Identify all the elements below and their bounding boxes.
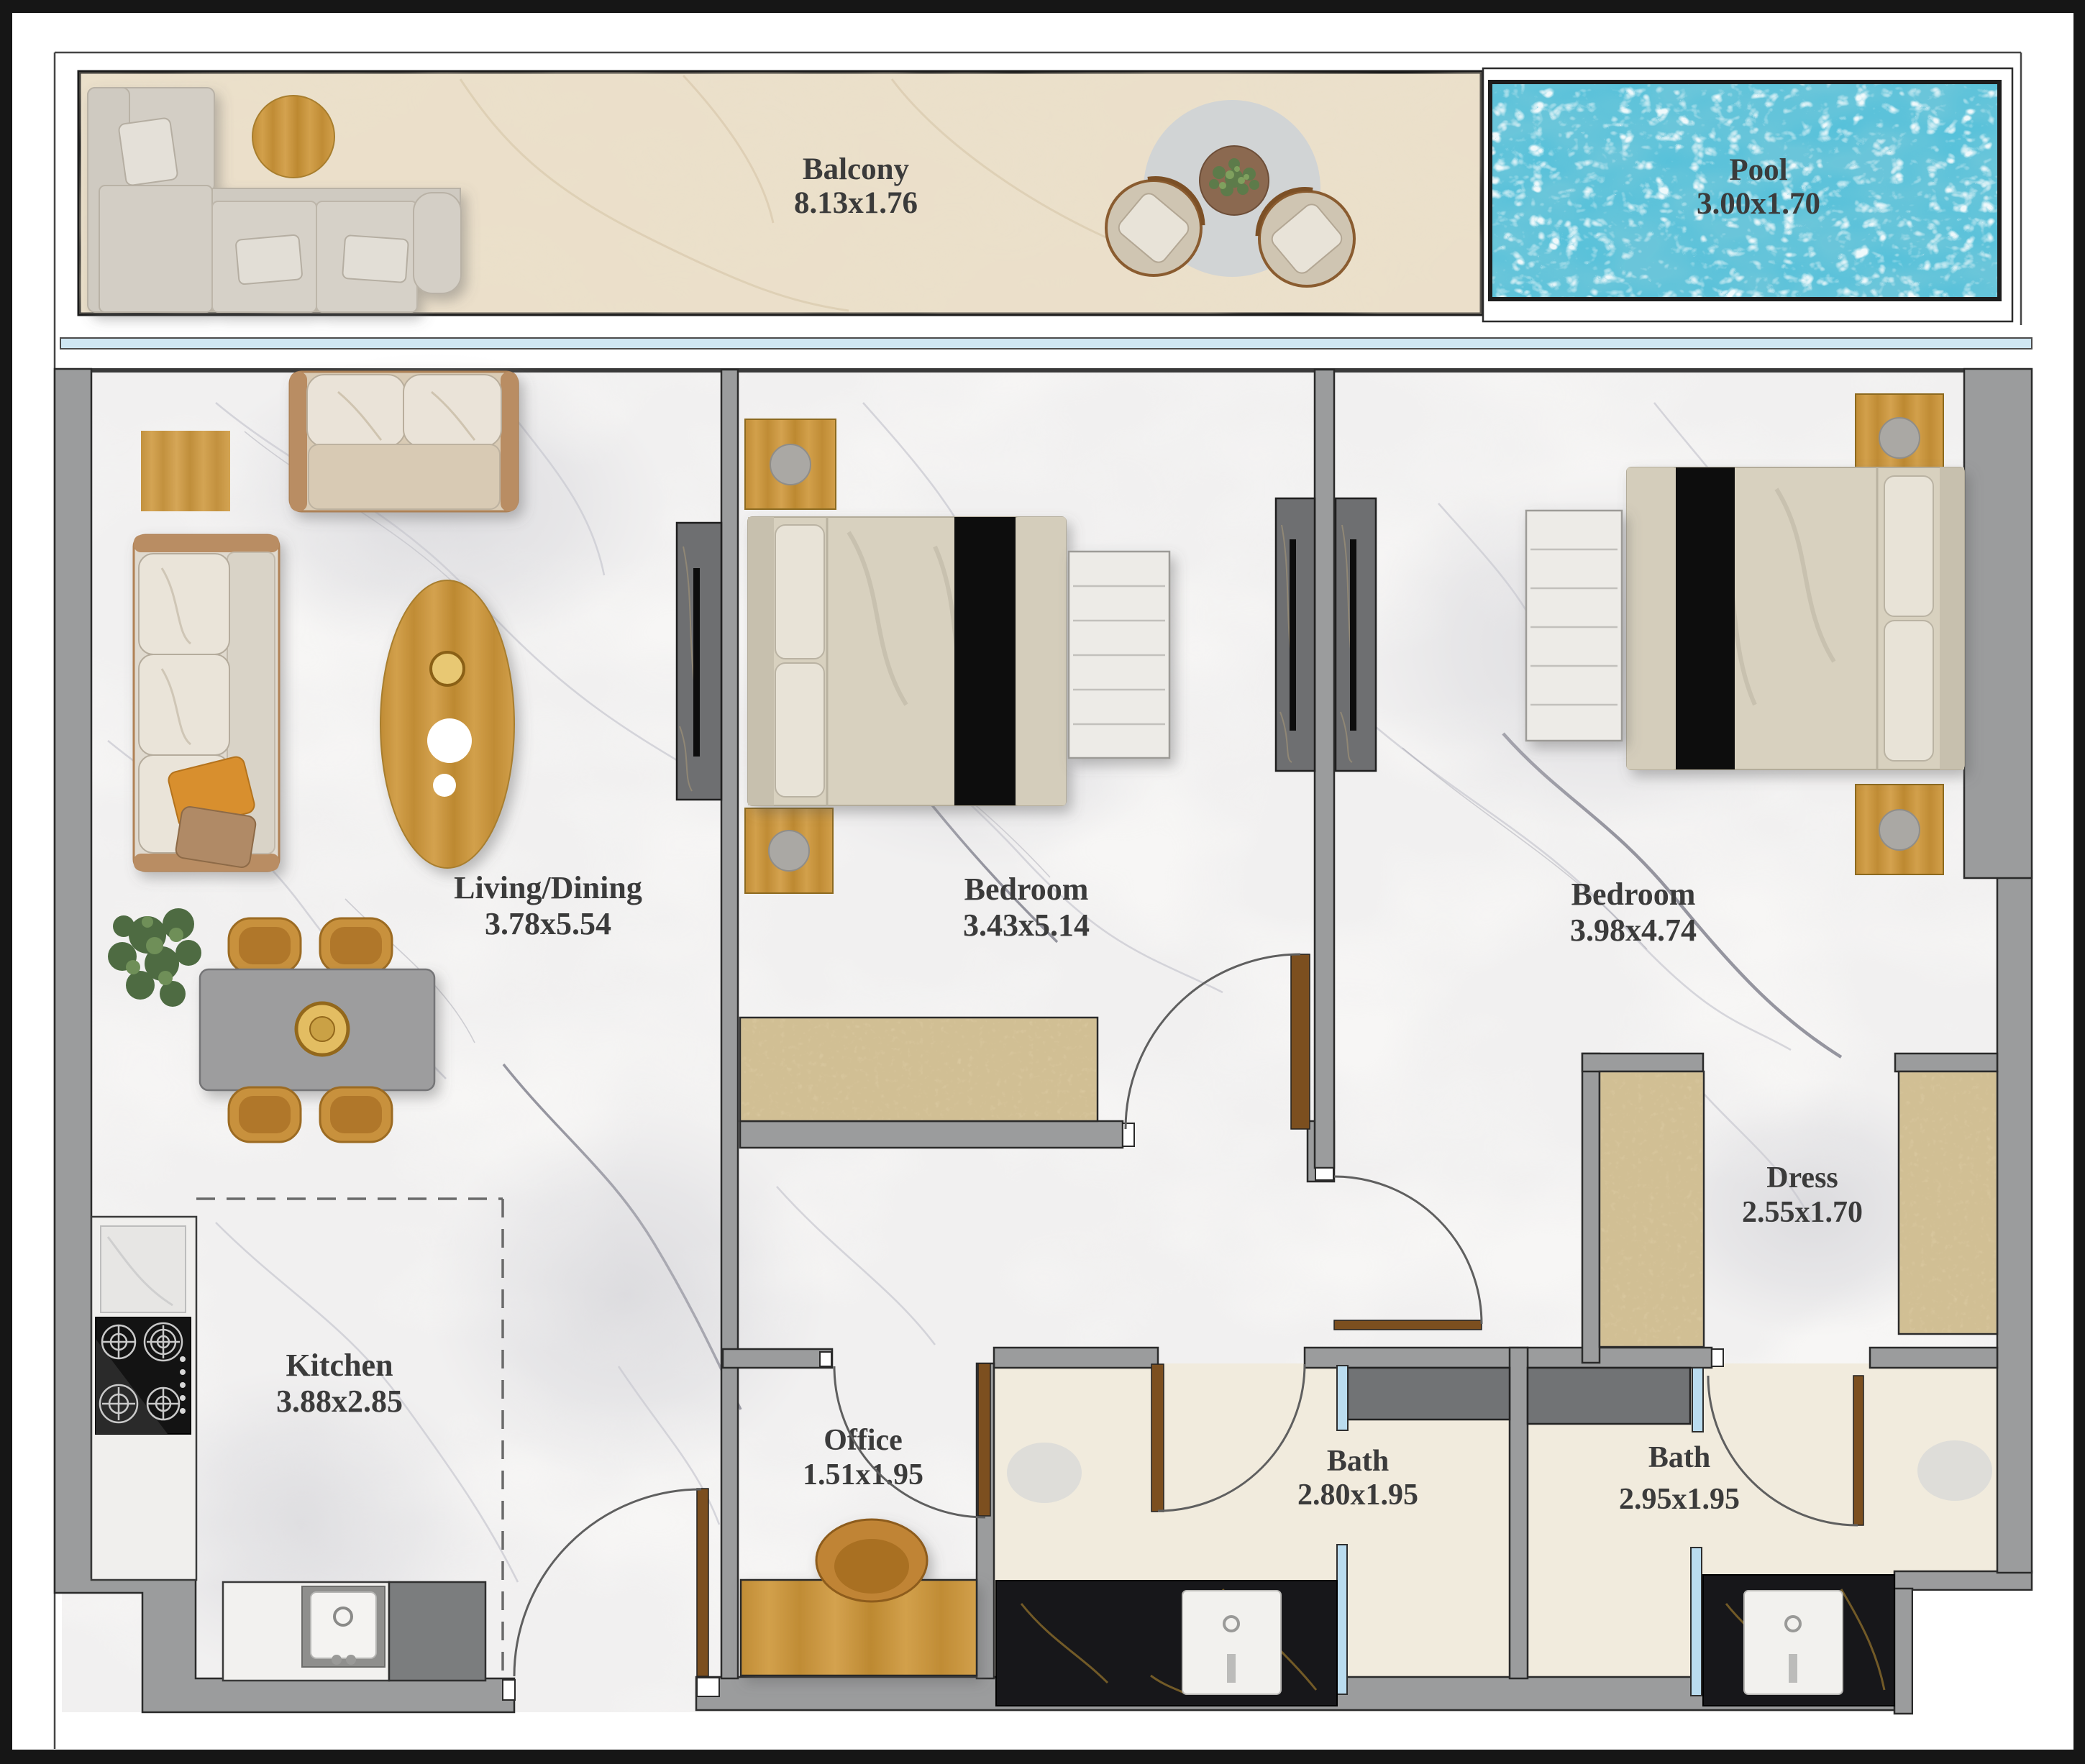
svg-text:3.00x1.70: 3.00x1.70	[1697, 187, 1820, 221]
svg-text:Kitchen: Kitchen	[286, 1348, 393, 1383]
svg-text:2.80x1.95: 2.80x1.95	[1297, 1479, 1418, 1512]
svg-text:Bath: Bath	[1327, 1445, 1389, 1478]
svg-text:2.95x1.95: 2.95x1.95	[1619, 1483, 1740, 1516]
svg-text:3.88x2.85: 3.88x2.85	[276, 1384, 403, 1419]
svg-text:Bath: Bath	[1648, 1441, 1710, 1474]
svg-text:2.55x1.70: 2.55x1.70	[1742, 1196, 1863, 1229]
svg-text:Bedroom: Bedroom	[964, 872, 1089, 907]
svg-text:Pool: Pool	[1729, 153, 1787, 187]
svg-text:Dress: Dress	[1766, 1161, 1838, 1194]
svg-text:Office: Office	[823, 1424, 903, 1457]
svg-text:8.13x1.76: 8.13x1.76	[794, 186, 918, 220]
svg-text:Living/Dining: Living/Dining	[454, 870, 642, 905]
svg-text:3.98x4.74: 3.98x4.74	[1570, 913, 1697, 948]
svg-text:Bedroom: Bedroom	[1571, 877, 1696, 912]
svg-text:3.43x5.14: 3.43x5.14	[963, 908, 1090, 943]
svg-text:3.78x5.54: 3.78x5.54	[485, 906, 611, 941]
svg-text:1.51x1.95: 1.51x1.95	[803, 1458, 923, 1491]
svg-text:Balcony: Balcony	[803, 152, 910, 186]
